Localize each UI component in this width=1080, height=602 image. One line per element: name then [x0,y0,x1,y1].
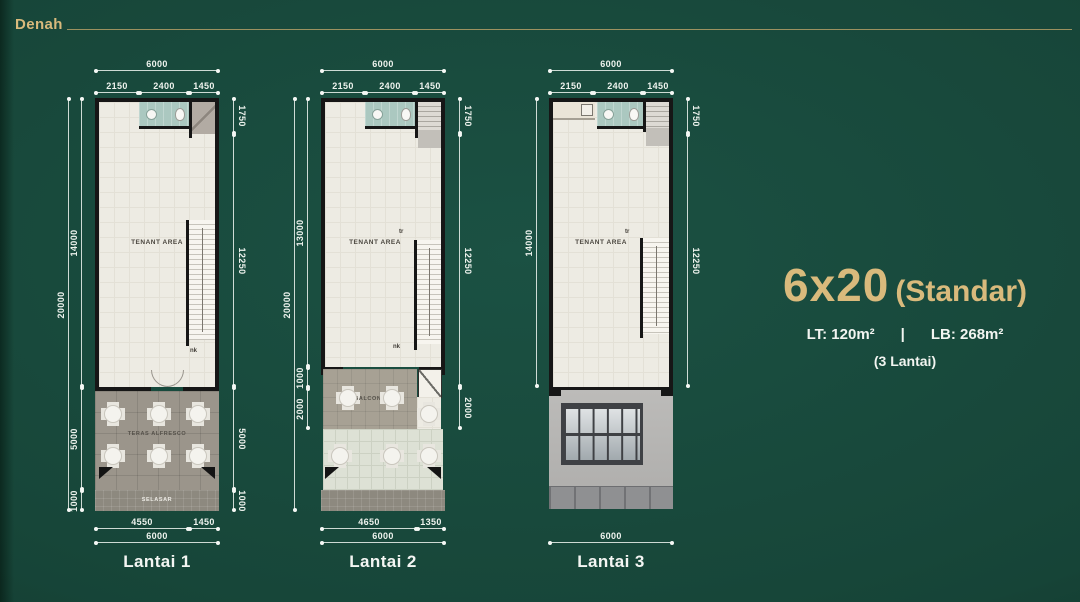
dim-top-seg-p2: 1450 [415,92,445,93]
round-table [416,443,442,469]
wall [139,126,189,129]
dim-label: 6000 [301,531,465,541]
dim-label: 1750 [691,105,701,127]
dim-label: 6000 [75,59,239,69]
dim-top-total-p3: 6000 [549,70,673,71]
unit-size-line: 6x20(Standar) [742,258,1068,312]
staircase-upper [418,102,441,130]
dim-right-seg-p1: 12250 [233,134,234,387]
room-label-tenant: TENANT AREA [343,238,407,247]
dim-label: 1000 [237,490,247,512]
dim-label: 12250 [691,247,701,274]
slide-canvas: Denah 6000 2150 2400 1450 20000 14000 50… [0,0,1080,602]
dim-bottom-total-p2: 6000 [321,542,445,543]
dim-label: 14000 [69,229,79,256]
dim-bottom-total-p1: 6000 [95,542,219,543]
round-table [146,443,172,469]
round-table [416,401,442,427]
dim-right-seg-p2: 1750 [459,98,460,134]
roof-edge-strip [549,486,673,509]
dim-label: 1750 [463,105,473,127]
pantry-sink-icon [581,104,593,116]
dim-label: 6000 [529,59,693,69]
dim-top-seg-p2: 2400 [365,92,415,93]
unit-variant: (Standar) [895,275,1027,308]
dim-label: 20000 [56,291,66,318]
bathroom [365,102,415,126]
dim-label: 1450 [623,81,693,91]
dim-label: 12250 [463,247,473,274]
dim-right-seg-p1: 1000 [233,490,234,511]
round-table [327,443,353,469]
dim-bottom-seg-p2: 4650 [321,528,417,529]
unit-size: 6x20 [783,259,889,311]
wall [414,240,417,350]
dim-top-total-p1: 6000 [95,70,219,71]
stair-direction-line [429,248,430,336]
round-table [100,401,126,427]
dim-right-seg-p2: 12250 [459,134,460,387]
selasar-corridor [321,490,445,511]
floorplan-lantai-2: tr nk TENANT AREA BALCONY [321,98,445,511]
wall [640,238,643,338]
sink-icon [372,109,383,120]
floor-label-3: Lantai 3 [539,552,683,572]
dim-top-seg-p3: 2400 [593,92,643,93]
round-table [185,443,211,469]
dim-left-seg-p1: 1000 [81,490,82,511]
wall [95,98,99,391]
dim-top-seg-p3: 1450 [643,92,673,93]
room-label-tenant: TENANT AREA [569,238,633,247]
dim-top-seg-p1: 1450 [189,92,219,93]
dim-bottom-total-p3: 6000 [549,542,673,543]
stair-direction-line [202,228,203,332]
page-title: Denah [15,16,63,33]
dim-bottom-seg-p1: 4550 [95,528,189,529]
skylight-window [561,403,643,465]
floor-label-1: Lantai 1 [85,552,229,572]
unit-area-line: LT: 120m² | LB: 268m² [742,326,1068,343]
dim-top-total-p2: 6000 [321,70,445,71]
wall [661,390,673,396]
dim-label: 6000 [301,59,465,69]
dim-label: 2000 [463,397,473,419]
alfresco-terrace: TERAS ALFRESCO [95,391,219,490]
dim-label: 12250 [237,247,247,274]
dim-label: 1750 [237,105,247,127]
sink-icon [146,109,157,120]
dim-label: 5000 [237,428,247,450]
dim-label: 6000 [75,531,239,541]
header-divider-line [67,29,1072,30]
dim-label: 1450 [395,81,465,91]
dim-top-seg-p1: 2400 [139,92,189,93]
corner-wedge [201,467,215,479]
toilet-icon [629,108,639,121]
dim-label: 20000 [282,291,292,318]
dim-right-seg-p3: 1750 [687,98,688,134]
staircase [643,238,669,334]
floor-count: (3 Lantai) [742,353,1068,369]
land-area: LT: 120m² [807,326,875,343]
area-label-selasar: SELASAR [95,497,219,503]
dim-left-outer-p2: 20000 [294,98,295,511]
bathroom [597,102,643,126]
wall [215,98,219,391]
dim-label: 6000 [529,531,693,541]
wall [597,126,643,129]
dim-right-seg-p1: 5000 [233,387,234,490]
toilet-icon [401,108,411,121]
wall [321,98,325,375]
stair-landing [646,128,669,146]
round-table [100,443,126,469]
dim-label: 2000 [295,398,305,420]
room-label-tenant: TENANT AREA [125,238,189,247]
dim-label: 1000 [295,367,305,389]
dim-left-seg-p2: 2000 [307,388,308,429]
dim-label: 1000 [69,490,79,512]
dim-label: 5000 [69,428,79,450]
dim-top-seg-p3: 2150 [549,92,593,93]
area-separator: | [901,326,905,343]
round-table [379,443,405,469]
unit-info-block: 6x20(Standar) LT: 120m² | LB: 268m² (3 L… [742,258,1068,369]
pantry-counter [553,102,595,120]
dim-bottom-seg-p2: 1350 [417,528,445,529]
wall [549,98,553,391]
corner-wedge [99,467,113,479]
dim-top-seg-p2: 2150 [321,92,365,93]
dim-label: 1450 [169,517,239,527]
void-shaft [418,369,442,398]
dim-label: 1350 [397,517,465,527]
staircase [417,240,441,344]
floorplan-lantai-3: tr TENANT AREA [549,98,673,508]
stair-landing [418,130,441,148]
dim-label: 13000 [295,219,305,246]
dim-left-seg-p3: 14000 [536,98,537,387]
corner-wedge [427,467,441,479]
stair-note: nk [393,344,400,350]
wall [365,126,415,129]
dim-top-seg-p1: 2150 [95,92,139,93]
wall [669,98,673,391]
floor-label-2: Lantai 2 [311,552,455,572]
dim-left-seg-p1: 5000 [81,387,82,490]
utility-room [192,102,215,134]
dim-right-seg-p3: 12250 [687,134,688,387]
dim-right-seg-p2: 2000 [459,387,460,429]
dim-right-seg-p1: 1750 [233,98,234,134]
stair-note: tr [625,229,629,235]
dim-bottom-seg-p1: 1450 [189,528,219,529]
round-table [185,401,211,427]
dim-left-seg-p1: 14000 [81,98,82,387]
sink-icon [603,109,614,120]
stair-note: nk [190,348,197,354]
dim-left-seg-p2: 1000 [307,367,308,388]
balcony: BALCONY [323,369,417,429]
dim-label: 1450 [169,81,239,91]
open-terrace [323,429,443,490]
round-table [146,401,172,427]
dim-left-seg-p2: 13000 [307,98,308,367]
area-label-teras: TERAS ALFRESCO [95,431,219,437]
selasar-corridor: SELASAR [95,490,219,511]
building-area: LB: 268m² [931,326,1004,343]
corner-wedge [325,467,339,479]
round-table [379,385,405,411]
staircase-upper [646,102,669,128]
toilet-icon [175,108,185,121]
stair-direction-line [656,246,657,326]
wall [441,98,445,375]
staircase [189,220,215,340]
floorplan-lantai-1: nk TENANT AREA TERAS ALFRESCO SELASAR [95,98,219,511]
stair-note: tr [399,229,403,235]
dim-label: 14000 [524,229,534,256]
facade-roof [549,390,673,508]
wall [549,390,561,396]
bathroom [139,102,189,126]
